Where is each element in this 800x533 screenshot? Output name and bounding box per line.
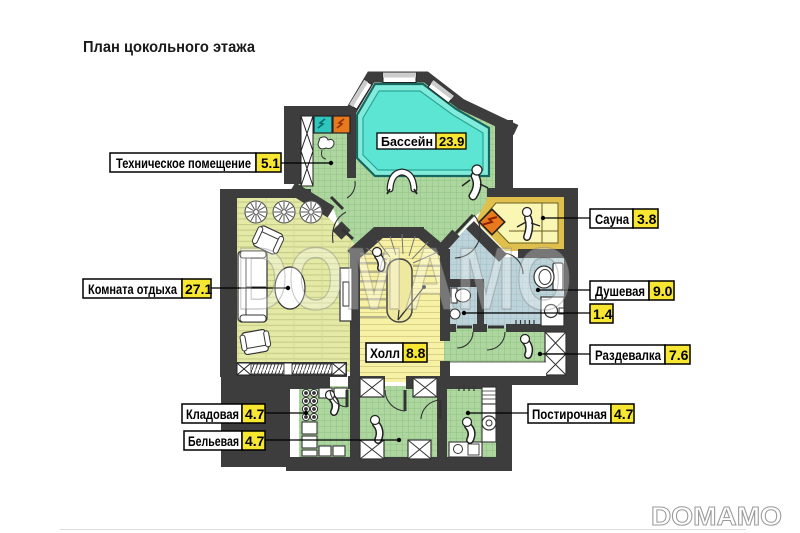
svg-text:4.7: 4.7	[245, 406, 265, 422]
svg-text:Холл: Холл	[370, 345, 400, 361]
svg-text:9.0: 9.0	[653, 283, 673, 299]
svg-text:DOMAMO: DOMAMO	[651, 501, 782, 531]
svg-text:Бассейн: Бассейн	[381, 134, 433, 149]
svg-text:5.1: 5.1	[261, 156, 280, 171]
svg-text:План цокольного этажа: План цокольного этажа	[83, 39, 255, 56]
svg-text:Раздевалка: Раздевалка	[595, 347, 661, 363]
svg-text:Бельевая: Бельевая	[188, 433, 239, 449]
svg-text:8.8: 8.8	[406, 345, 426, 361]
svg-text:4.7: 4.7	[245, 433, 265, 449]
svg-text:DOMAMO: DOMAMO	[236, 229, 572, 328]
svg-text:Кладовая: Кладовая	[186, 406, 239, 422]
svg-text:Душевая: Душевая	[595, 283, 645, 299]
svg-text:7.6: 7.6	[669, 347, 689, 363]
svg-text:3.8: 3.8	[637, 211, 657, 227]
svg-text:Комната отдыха: Комната отдыха	[88, 282, 177, 297]
svg-text:Сауна: Сауна	[595, 211, 629, 227]
svg-text:1.4: 1.4	[593, 306, 613, 322]
svg-text:27.1: 27.1	[185, 281, 212, 297]
svg-text:23.9: 23.9	[439, 134, 464, 149]
svg-text:4.7: 4.7	[614, 406, 634, 422]
svg-text:Техническое помещение: Техническое помещение	[116, 156, 251, 171]
svg-text:Постирочная: Постирочная	[532, 406, 607, 422]
